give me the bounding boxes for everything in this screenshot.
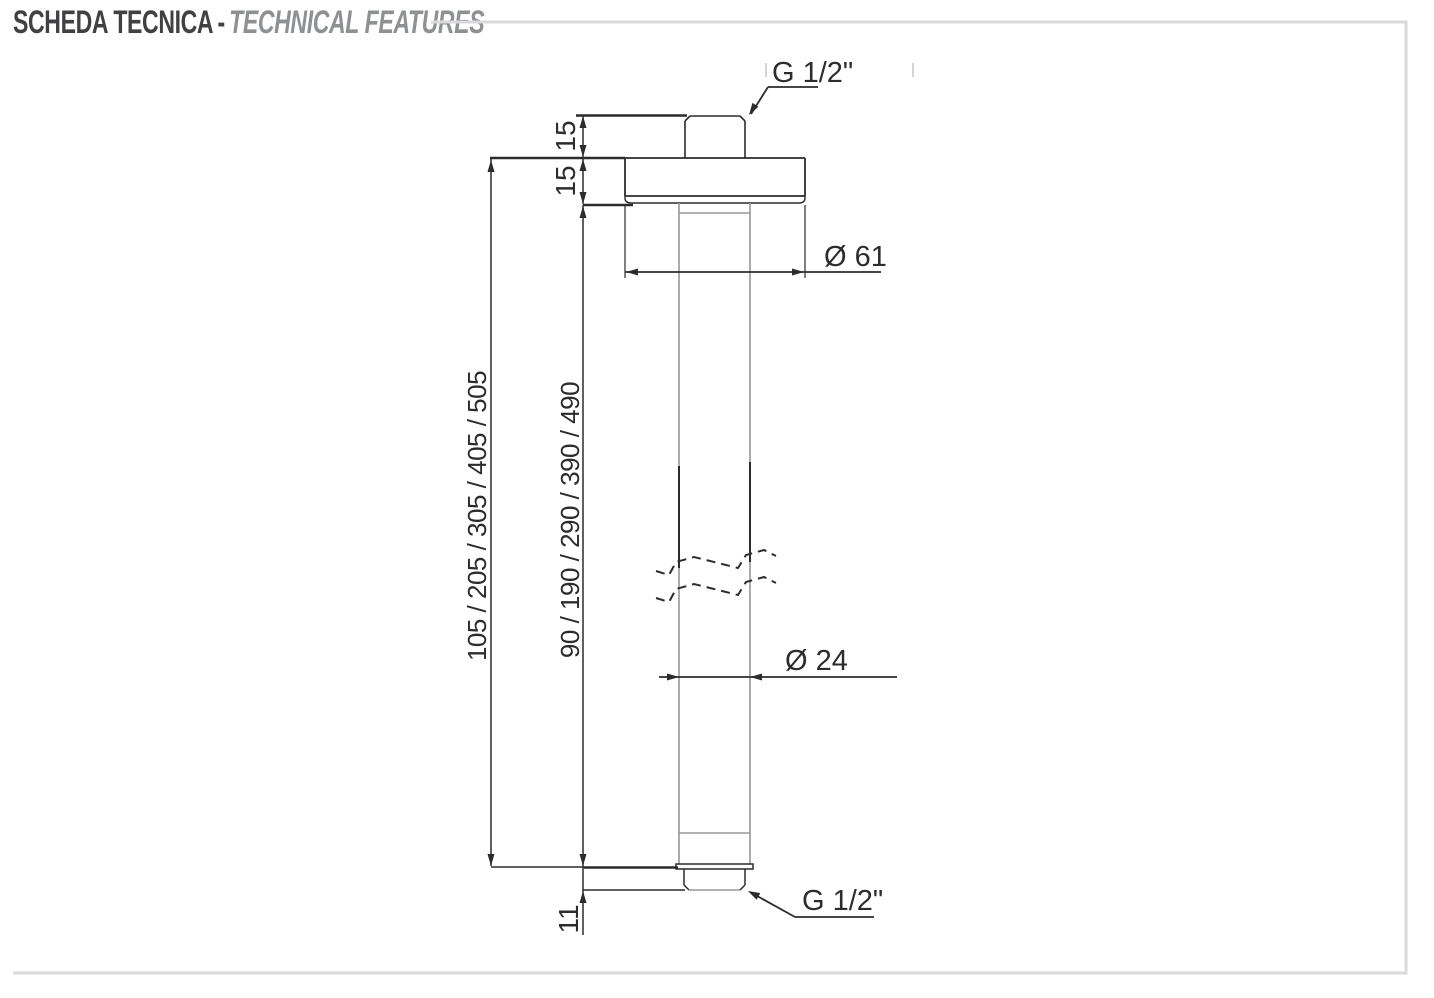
thread-top-outline (685, 116, 745, 158)
dimension-arrowheads (488, 103, 805, 903)
label-arm-diameter: Ø 24 (785, 646, 848, 676)
content-frame (13, 22, 1406, 973)
arm-tube (679, 203, 750, 864)
label-dim-thread-bottom-length: 11 (554, 889, 584, 949)
technical-sheet-page: SCHEDA TECNICA-TECHNICAL FEATURES (0, 0, 1434, 998)
label-thread-top-size: G 1/2" (772, 58, 853, 88)
label-dim-flange-height: 15 (551, 151, 581, 211)
label-total-lengths: 105 / 205 / 305 / 405 / 505 (462, 351, 492, 681)
label-flange-diameter: Ø 61 (824, 242, 887, 272)
collar-outline (676, 864, 753, 869)
flange-outline (625, 158, 805, 203)
arm-tube-dark-segments (679, 462, 750, 568)
label-thread-bottom-size: G 1/2" (802, 886, 883, 916)
leader-thread-top (751, 87, 818, 114)
label-arm-lengths: 90 / 190 / 290 / 390 / 490 (555, 360, 585, 680)
extension-lines (490, 116, 805, 891)
technical-drawing (0, 0, 1434, 998)
dimension-lines-horizontal (625, 272, 897, 677)
break-lines (656, 550, 776, 602)
thread-bottom-outline (684, 869, 745, 890)
